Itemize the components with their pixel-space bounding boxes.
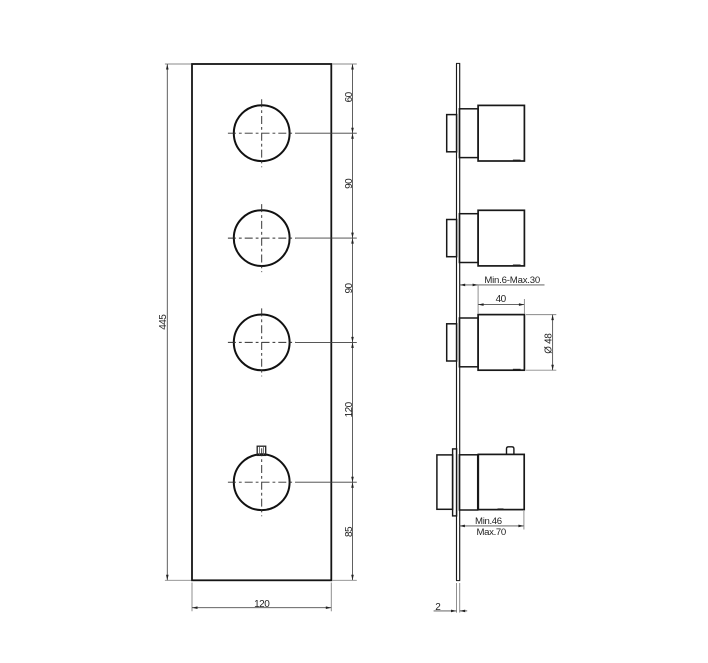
- svg-text:120: 120: [254, 599, 270, 610]
- svg-text:Ø 48: Ø 48: [544, 333, 555, 354]
- svg-text:40: 40: [496, 294, 507, 305]
- svg-text:Min.46: Min.46: [475, 516, 502, 527]
- svg-text:445: 445: [158, 314, 169, 330]
- svg-text:Max.70: Max.70: [477, 527, 506, 538]
- svg-text:90: 90: [344, 178, 355, 189]
- svg-text:90: 90: [344, 283, 355, 294]
- svg-text:85: 85: [344, 526, 355, 537]
- svg-text:120: 120: [344, 401, 355, 417]
- svg-text:Min.6-Max.30: Min.6-Max.30: [484, 275, 540, 286]
- svg-text:60: 60: [344, 91, 355, 102]
